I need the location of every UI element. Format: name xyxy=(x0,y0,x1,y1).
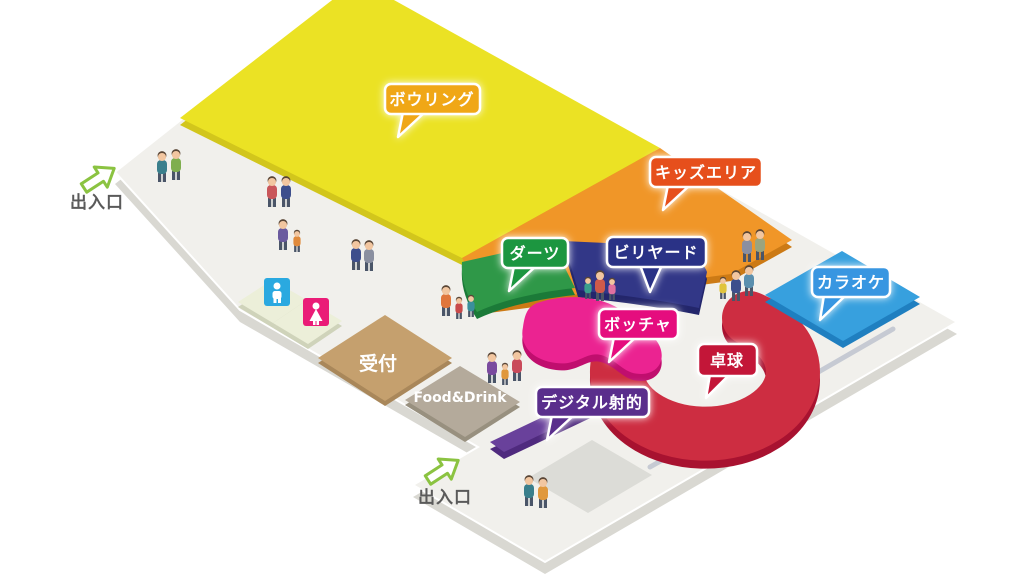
svg-text:キッズエリア: キッズエリア xyxy=(655,163,757,182)
reception-label: 受付 xyxy=(359,352,397,375)
svg-text:ボウリング: ボウリング xyxy=(389,90,474,109)
male-restroom-icon xyxy=(264,278,290,306)
svg-text:ボッチャ: ボッチャ xyxy=(604,315,672,334)
entrance-upper-left: 出入口 xyxy=(70,158,124,213)
entrance-label: 出入口 xyxy=(70,192,124,213)
svg-text:ビリヤード: ビリヤード xyxy=(613,243,698,262)
female-restroom-icon xyxy=(303,298,329,326)
svg-text:卓球: 卓球 xyxy=(710,351,744,370)
svg-text:カラオケ: カラオケ xyxy=(817,273,885,292)
entrance-label: 出入口 xyxy=(418,487,472,508)
facility-floor-map: 受付 Food&Drink ボウリング xyxy=(0,0,1024,576)
food-drink-label: Food&Drink xyxy=(413,390,507,406)
svg-text:ダーツ: ダーツ xyxy=(510,244,561,263)
svg-text:デジタル射的: デジタル射的 xyxy=(541,393,643,412)
